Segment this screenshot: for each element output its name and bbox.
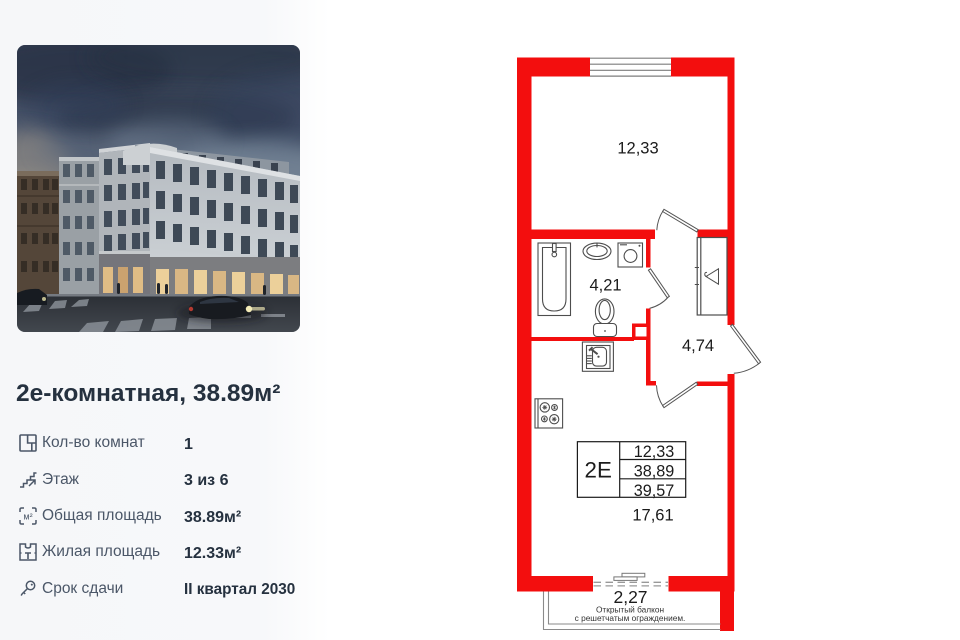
svg-text:12,33: 12,33 xyxy=(634,443,675,461)
svg-text:12,33: 12,33 xyxy=(617,139,658,157)
svg-text:38,89: 38,89 xyxy=(634,463,675,481)
svg-text:4,21: 4,21 xyxy=(589,277,621,295)
svg-text:17,61: 17,61 xyxy=(632,506,673,524)
svg-text:с решетчатым ограждением.: с решетчатым ограждением. xyxy=(575,613,686,623)
svg-text:2Е: 2Е xyxy=(585,457,612,482)
svg-text:4,74: 4,74 xyxy=(682,337,714,355)
svg-text:39,57: 39,57 xyxy=(634,482,675,500)
